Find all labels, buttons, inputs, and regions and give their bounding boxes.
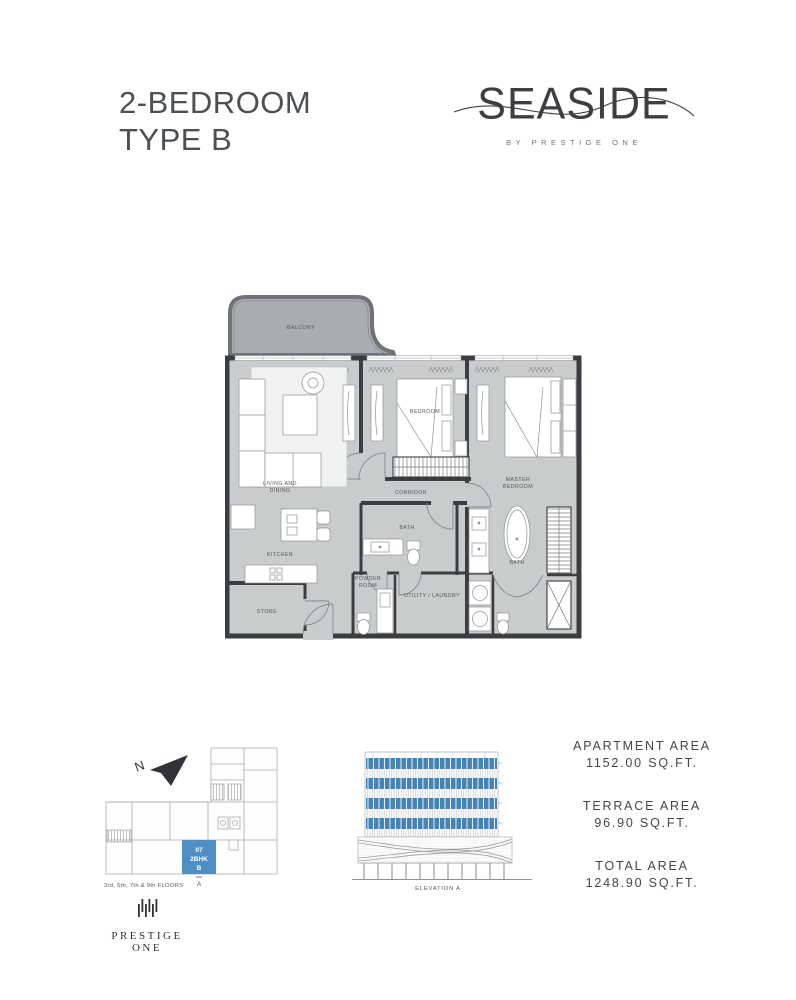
unit-number: 07 [195, 847, 203, 854]
area-summary: APARTMENT AREA 1152.00 SQ.FT. TERRACE AR… [552, 738, 732, 918]
developer-name: PRESTIGE ONE [95, 930, 199, 954]
page-title: 2-BEDROOM TYPE B [119, 84, 311, 158]
tower-floors [366, 752, 502, 837]
area-apartment-label: APARTMENT AREA [552, 738, 732, 755]
unit-type: 2BHK [190, 856, 208, 863]
section-marker: A [197, 881, 202, 888]
room-label-kitchen: KITCHEN [267, 552, 293, 558]
room-label-living-2: DINING [270, 488, 291, 494]
area-total: TOTAL AREA 1248.90 SQ.FT. [552, 858, 732, 892]
brochure-page: 2-BEDROOM TYPE B SEASIDE BY PRESTIGE ONE [0, 0, 796, 1000]
shaft [547, 581, 571, 629]
room-label-balcony: BALCONY [287, 325, 315, 331]
north-arrow-icon [150, 755, 188, 786]
room-label-store: STORE [257, 609, 277, 615]
area-apartment: APARTMENT AREA 1152.00 SQ.FT. [552, 738, 732, 772]
room-label-living-1: LIVING AND [263, 481, 297, 487]
north-label: N [133, 757, 147, 774]
area-apartment-value: 1152.00 SQ.FT. [552, 755, 732, 772]
area-terrace-value: 96.90 SQ.FT. [552, 815, 732, 832]
developer-logo: PRESTIGE ONE [95, 896, 199, 954]
area-total-value: 1248.90 SQ.FT. [552, 875, 732, 892]
brand-logo: SEASIDE BY PRESTIGE ONE [452, 80, 696, 147]
brand-tagline: BY PRESTIGE ONE [452, 138, 696, 147]
elevation-caption: ELEVATION A [415, 886, 461, 892]
title-line-1: 2-BEDROOM [119, 84, 311, 121]
room-label-master-bath: BATH [509, 560, 524, 566]
entrance-opening [303, 631, 333, 640]
floors-caption: 3rd, 5th, 7th & 9th FLOORS [104, 883, 183, 889]
living-furniture [239, 367, 347, 487]
room-label-powder-2: ROOM [359, 583, 377, 589]
colonnade-base [352, 863, 532, 880]
room-label-master-2: BEDROOM [503, 484, 533, 490]
area-terrace-label: TERRACE AREA [552, 798, 732, 815]
room-label-bath: BATH [399, 525, 414, 531]
podium [358, 837, 512, 863]
room-label-utility: UTILITY / LAUNDRY [404, 593, 460, 599]
room-label-master-1: MASTER [506, 477, 530, 483]
unit-letter: B [197, 865, 202, 872]
room-label-corridor: CORRIDOR [395, 490, 427, 496]
prestige-one-mark-icon [135, 896, 159, 921]
room-label-bedroom: BEDROOM [410, 409, 440, 415]
brand-wordmark: SEASIDE [452, 79, 696, 130]
area-total-label: TOTAL AREA [552, 858, 732, 875]
floor-plan: BALCONY LIVING AND DINING BEDROOM CORRID… [225, 291, 585, 645]
area-terrace: TERRACE AREA 96.90 SQ.FT. [552, 798, 732, 832]
title-line-2: TYPE B [119, 121, 311, 158]
key-plan: N 07 2BHK B A 3rd, 5th, 7th & 9th FLOORS [98, 740, 293, 890]
room-label-powder-1: POWDER [355, 576, 381, 582]
master-wardrobe [547, 507, 571, 573]
wardrobe [393, 457, 469, 477]
elevation-diagram: ELEVATION A [352, 742, 532, 892]
windows [235, 356, 573, 361]
